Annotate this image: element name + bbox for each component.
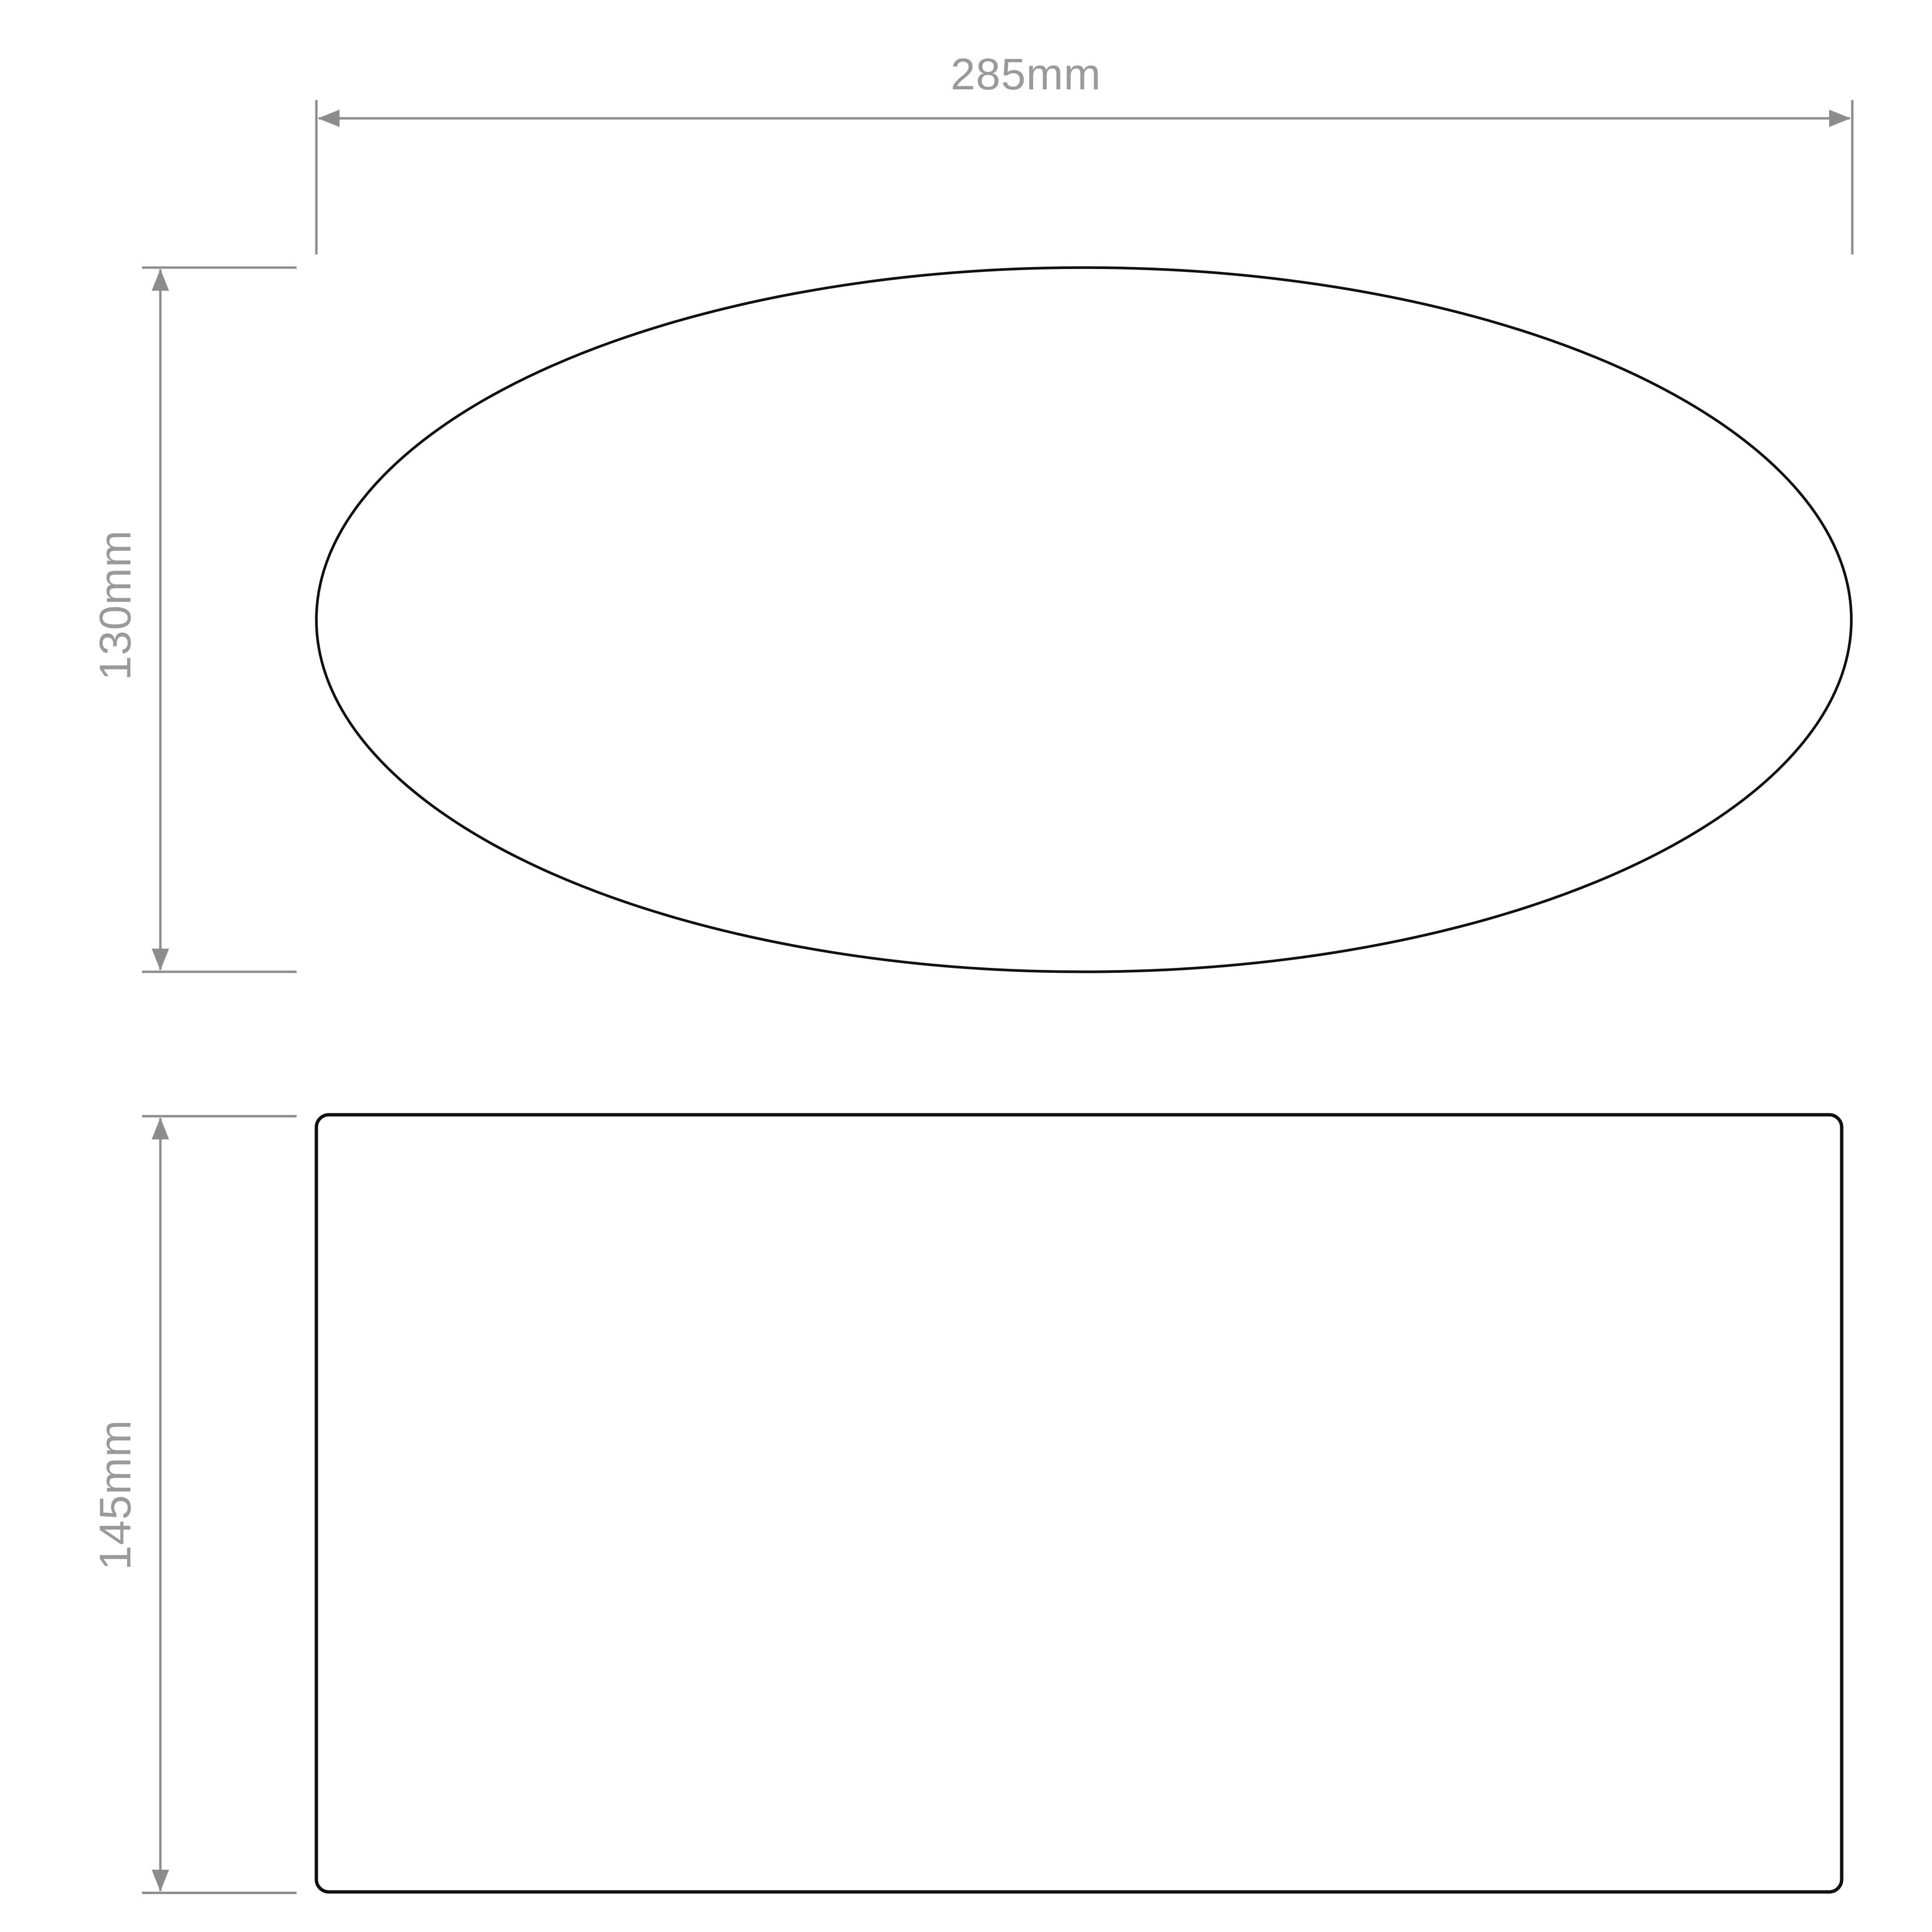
arrow-left-icon	[318, 110, 340, 127]
arrow-down-top-view-icon	[152, 949, 169, 970]
top-view-height-dimension-label: 130mm	[91, 530, 140, 681]
dimension-drawing-page: 285mm 130mm 145mm	[0, 0, 1932, 1932]
arrow-down-front-view-icon	[152, 1870, 169, 1891]
width-dimension-label: 285mm	[951, 50, 1101, 99]
arrow-right-icon	[1829, 110, 1851, 127]
dimension-labels: 285mm 130mm 145mm	[91, 50, 1101, 1570]
top-view-ellipse	[316, 268, 1851, 972]
dimension-arrowheads	[152, 110, 1851, 1891]
product-outlines	[316, 268, 1851, 1892]
arrow-up-front-view-icon	[152, 1118, 169, 1139]
dimension-lines	[142, 100, 1852, 1893]
front-view-height-dimension-label: 145mm	[91, 1420, 140, 1570]
front-view-rectangle	[316, 1115, 1842, 1892]
dimension-drawing: 285mm 130mm 145mm	[0, 0, 1932, 1932]
arrow-up-top-view-icon	[152, 269, 169, 291]
